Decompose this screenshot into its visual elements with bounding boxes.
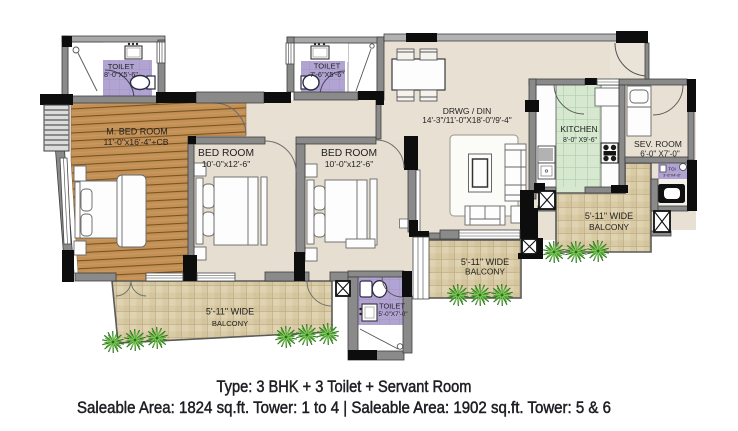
svg-text:6'-0" X7'-0": 6'-0" X7'-0" [640, 150, 680, 159]
svg-text:5'-11" WIDE: 5'-11" WIDE [585, 211, 633, 221]
svg-text:5'-11" WIDE: 5'-11" WIDE [206, 307, 254, 317]
svg-text:BED ROOM: BED ROOM [198, 148, 254, 159]
svg-text:BALCONY: BALCONY [465, 267, 505, 277]
svg-text:BED ROOM: BED ROOM [321, 148, 377, 159]
svg-text:5'-11" WIDE: 5'-11" WIDE [461, 257, 509, 267]
svg-text:8'-0"X5'-6": 8'-0"X5'-6" [104, 70, 138, 79]
svg-text:5'-0"X7'-0": 5'-0"X7'-0" [378, 311, 407, 318]
svg-text:14'-3"/11'-0"X18'-0"/9'-4": 14'-3"/11'-0"X18'-0"/9'-4" [422, 115, 512, 125]
svg-text:BALCONY: BALCONY [212, 319, 248, 328]
svg-text:10'-0"x12'-6": 10'-0"x12'-6" [202, 159, 251, 169]
svg-text:SEV. ROOM: SEV. ROOM [634, 139, 682, 149]
svg-text:11'-0"x16'-4"+CB: 11'-0"x16'-4"+CB [103, 137, 168, 147]
svg-text:7'-6"X5'-6": 7'-6"X5'-6" [310, 70, 344, 79]
svg-text:TOI: TOI [668, 167, 675, 172]
svg-text:8'-0" X9'-6": 8'-0" X9'-6" [563, 137, 598, 144]
svg-text:Saleable Area: 1824 sq.ft. Tow: Saleable Area: 1824 sq.ft. Tower: 1 to 4… [77, 399, 611, 417]
svg-text:10'-0"x12'-6": 10'-0"x12'-6" [325, 159, 374, 169]
svg-text:KITCHEN: KITCHEN [560, 124, 597, 134]
svg-text:3'-6"X4'-8": 3'-6"X4'-8" [663, 174, 681, 178]
svg-text:Type: 3 BHK + 3 Toilet + Serva: Type: 3 BHK + 3 Toilet + Servant Room [217, 378, 472, 396]
svg-text:M. BED ROOM: M. BED ROOM [106, 127, 168, 137]
svg-text:TOILET: TOILET [379, 302, 405, 311]
svg-text:BALCONY: BALCONY [589, 222, 629, 232]
